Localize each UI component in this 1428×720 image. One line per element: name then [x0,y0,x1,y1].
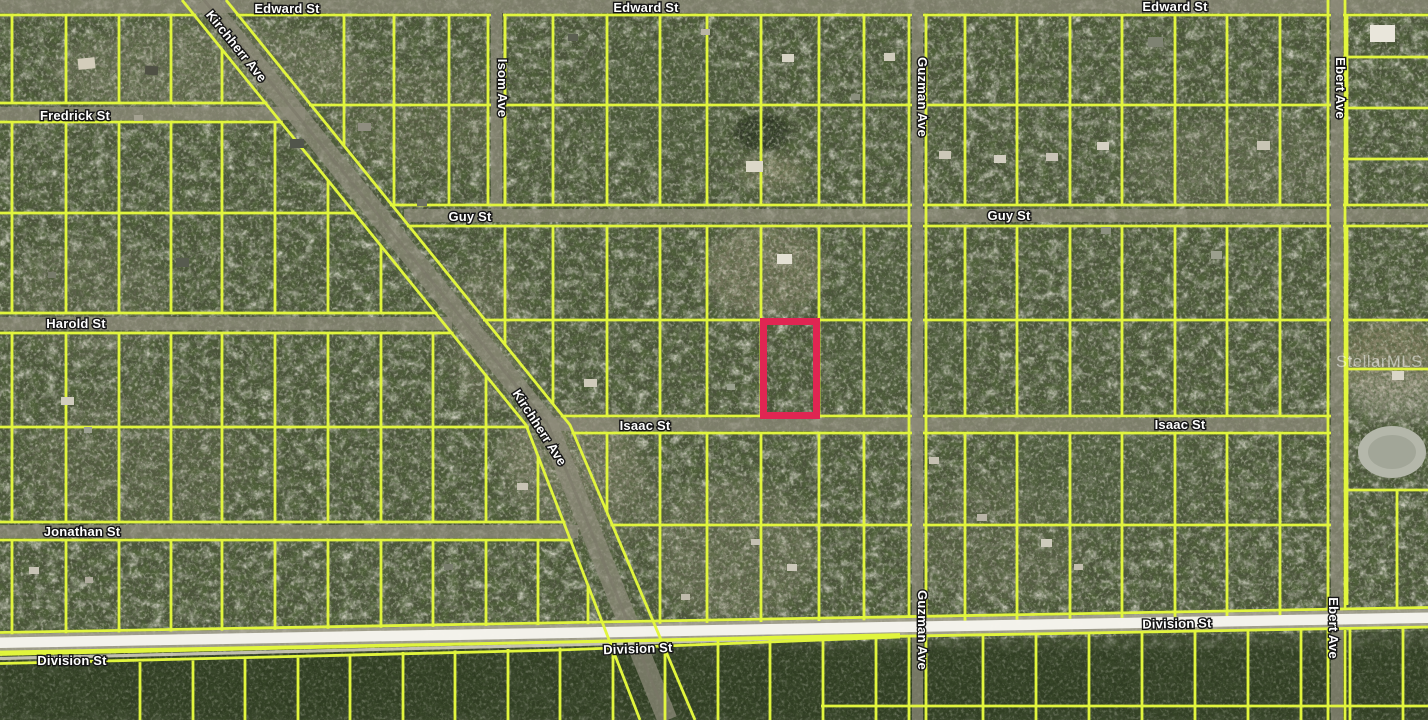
svg-text:StellarMLS: StellarMLS [1336,353,1423,371]
svg-text:Ebert Ave: Ebert Ave [1333,57,1348,119]
svg-text:Guy St: Guy St [987,208,1031,223]
svg-text:Jonathan St: Jonathan St [44,524,121,539]
svg-text:Harold St: Harold St [46,316,106,331]
svg-text:Isaac St: Isaac St [1155,417,1206,432]
svg-text:Guzman Ave: Guzman Ave [915,57,930,137]
svg-text:Ebert Ave: Ebert Ave [1326,597,1341,659]
svg-text:Division St: Division St [1142,615,1212,631]
svg-text:Edward St: Edward St [613,0,679,15]
svg-text:Guzman Ave: Guzman Ave [915,590,930,670]
svg-text:Isom Ave: Isom Ave [495,59,510,117]
svg-text:Edward St: Edward St [254,1,320,16]
svg-text:Isaac St: Isaac St [620,418,671,433]
svg-text:Division St: Division St [37,653,107,668]
svg-text:Fredrick St: Fredrick St [40,108,111,123]
svg-text:Edward St: Edward St [1142,0,1208,14]
svg-text:Division St: Division St [603,640,673,657]
svg-text:Guy St: Guy St [448,209,492,224]
